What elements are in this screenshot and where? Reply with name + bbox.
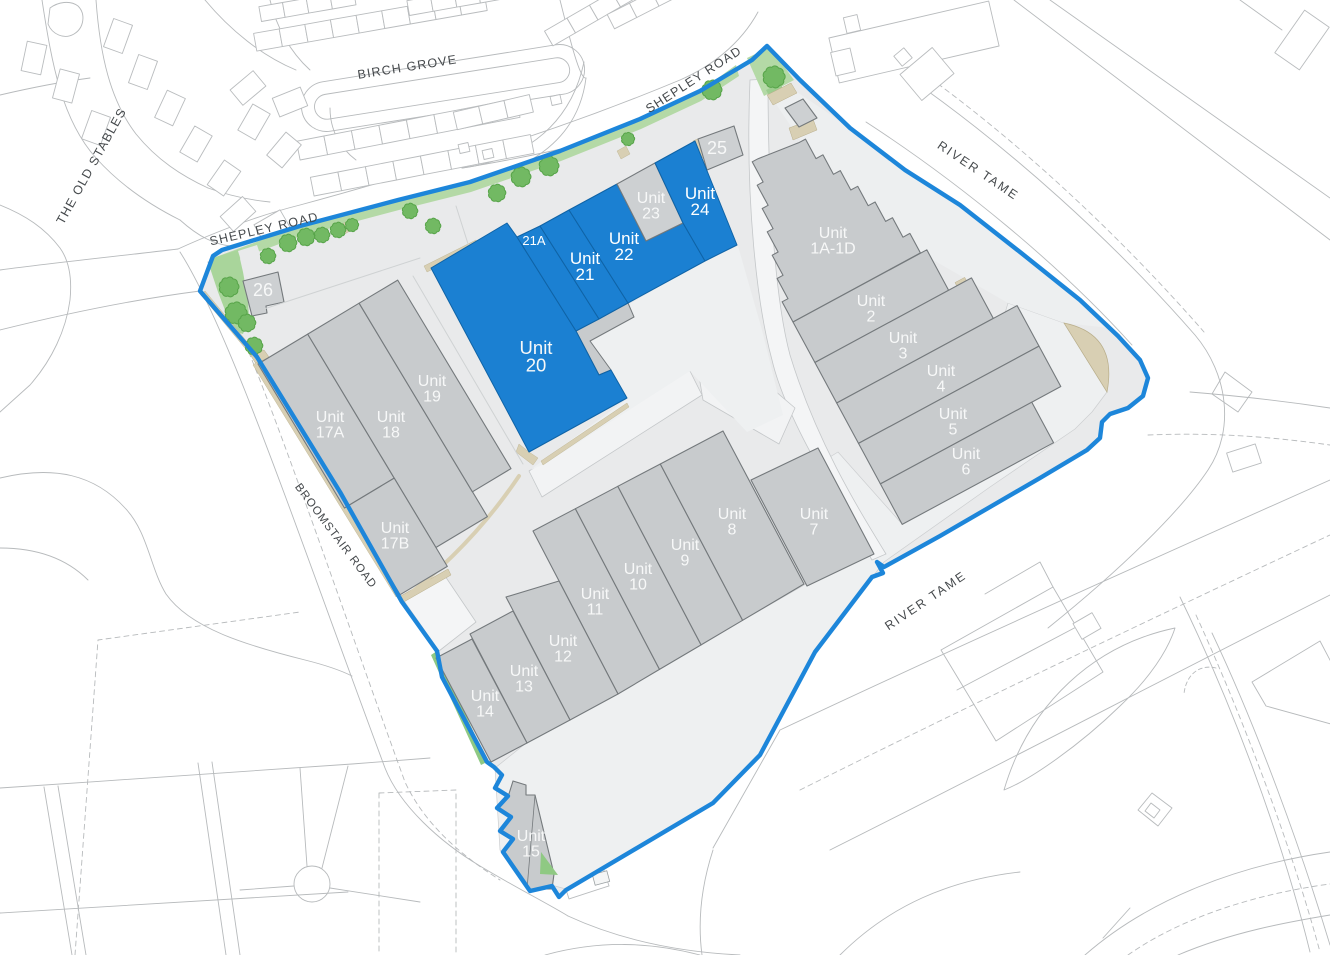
svg-text:26: 26 <box>253 280 273 300</box>
svg-text:Unit17B: Unit17B <box>381 520 410 552</box>
svg-text:Unit17A: Unit17A <box>316 409 345 441</box>
svg-text:25: 25 <box>707 138 727 158</box>
svg-text:21A: 21A <box>522 233 545 248</box>
